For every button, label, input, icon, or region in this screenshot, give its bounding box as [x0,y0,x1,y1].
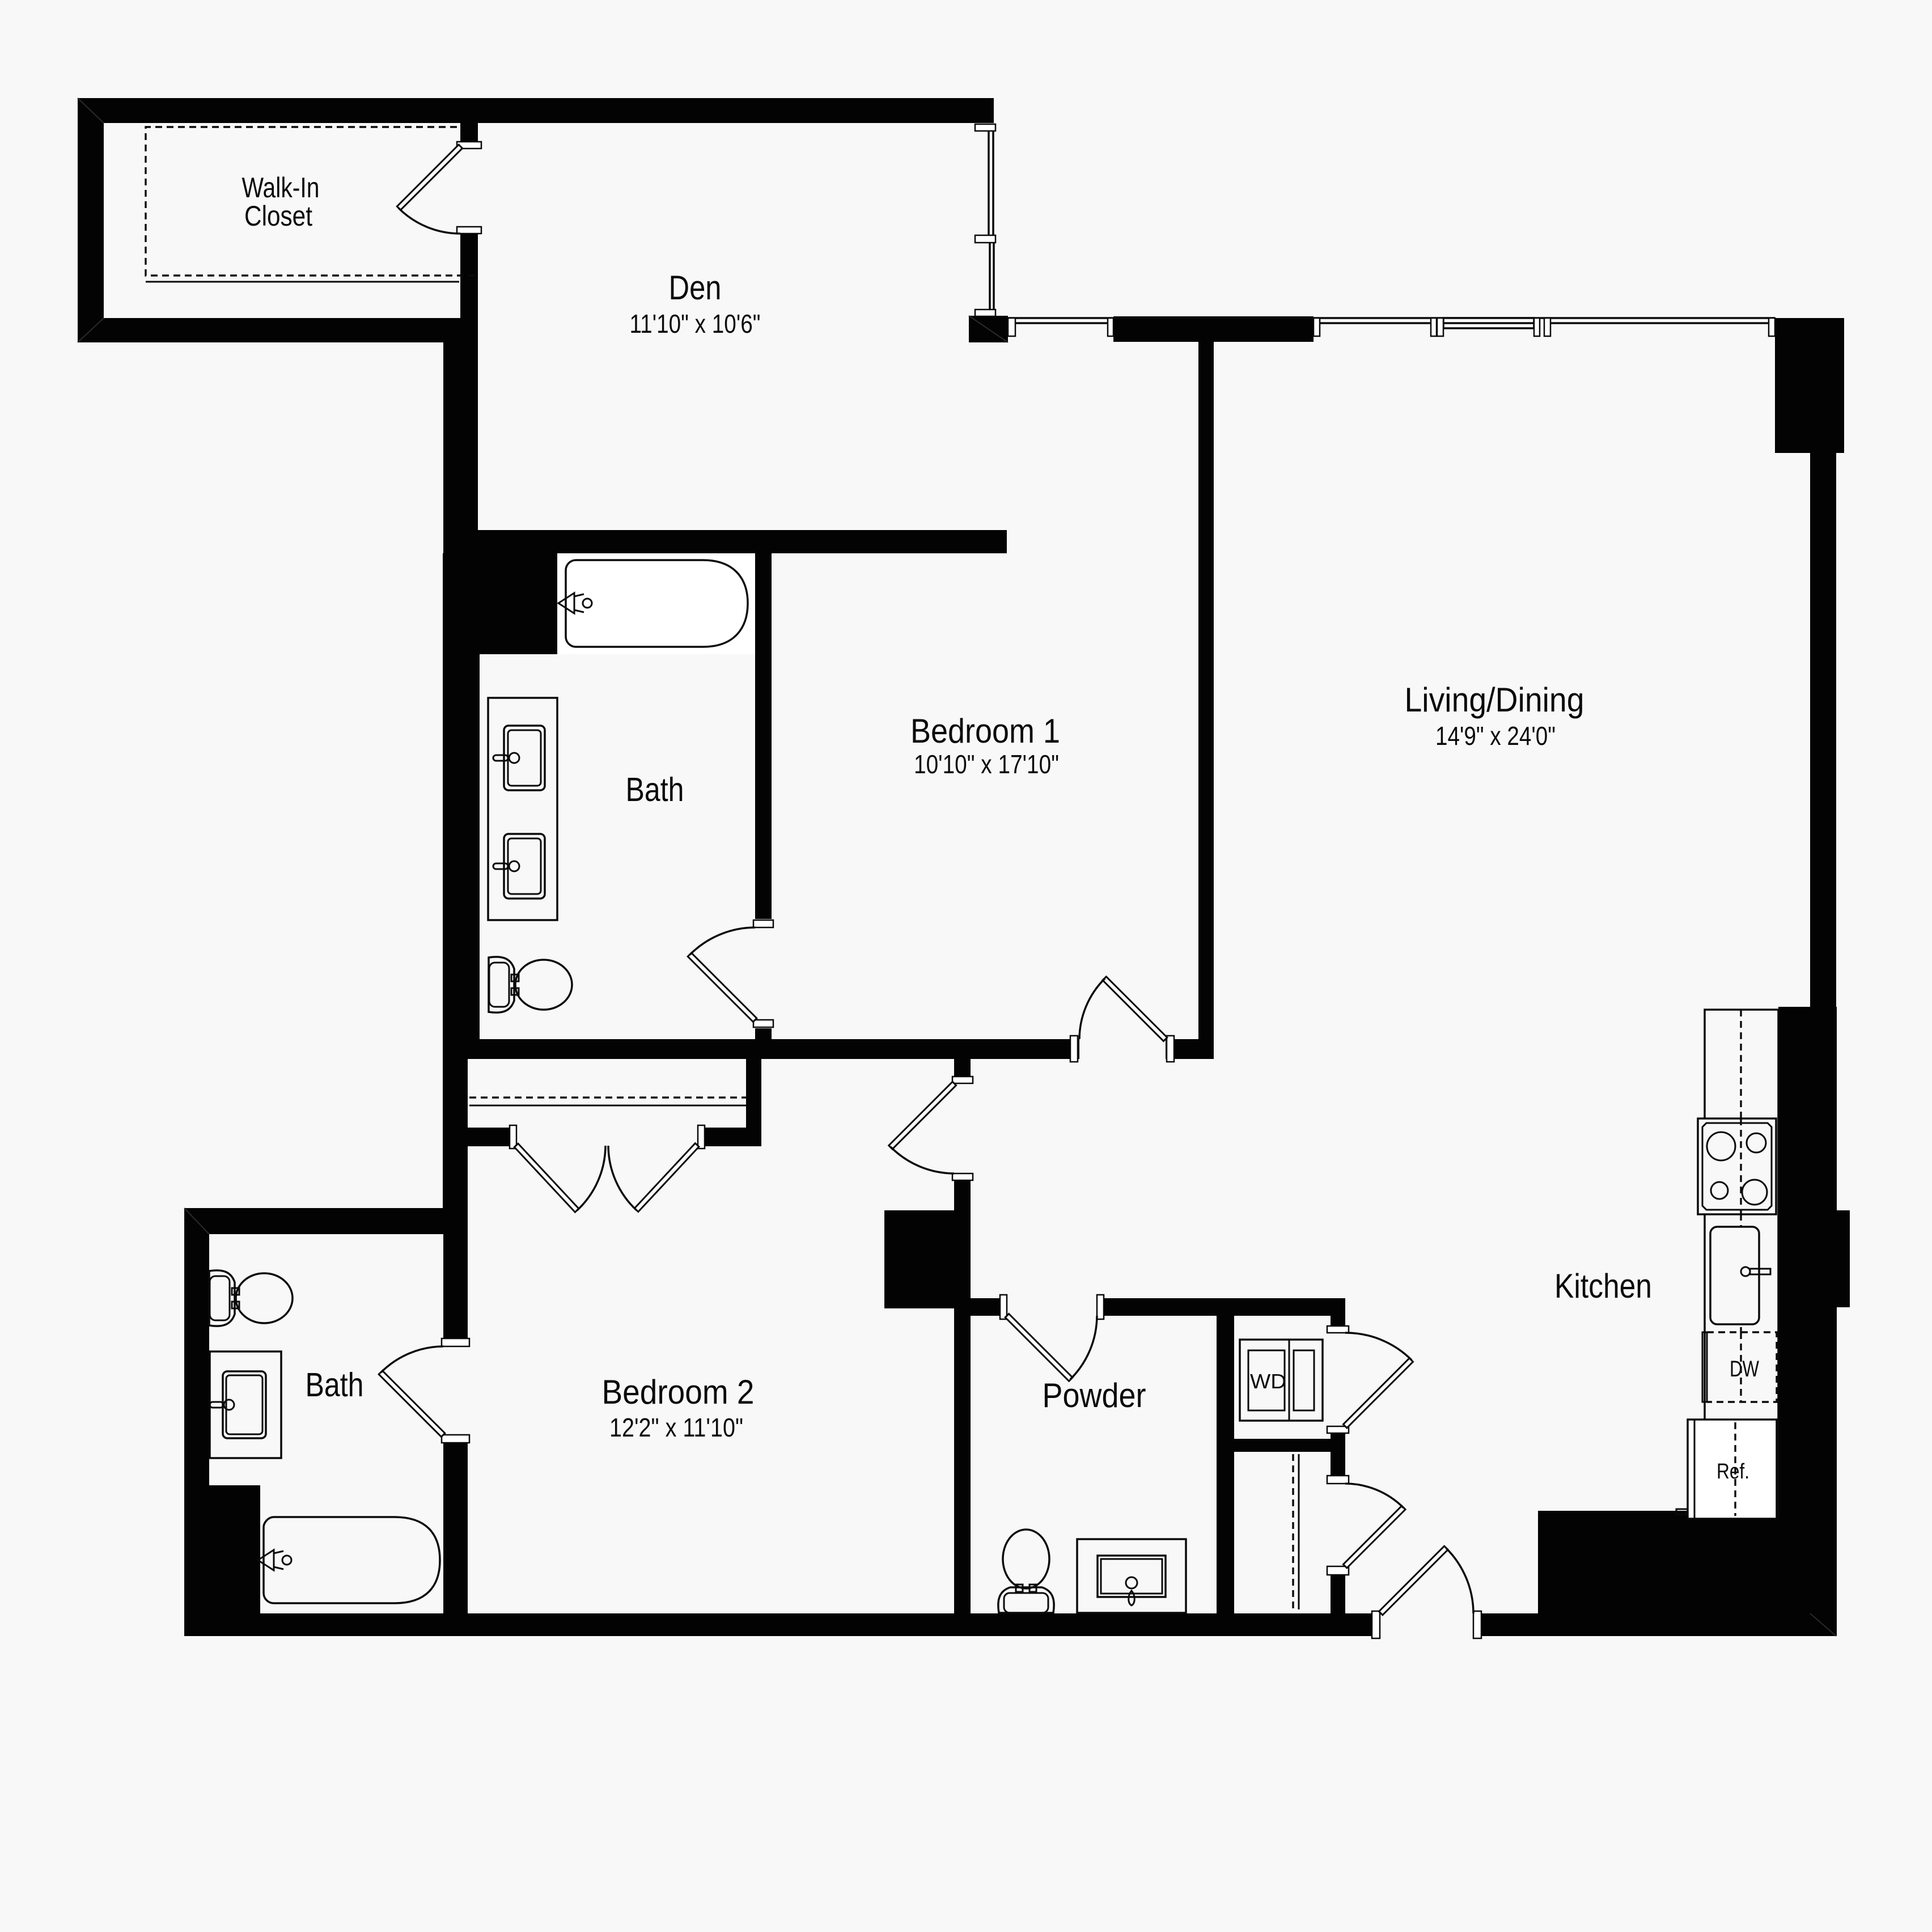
svg-text:Living/Dining: Living/Dining [1405,681,1584,719]
svg-text:11'10" x 10'6": 11'10" x 10'6" [630,309,761,338]
svg-text:Den: Den [669,269,722,307]
svg-text:Walk-In: Walk-In [242,172,320,204]
svg-text:Bath: Bath [626,771,684,808]
svg-text:Closet: Closet [244,200,312,232]
svg-text:Powder: Powder [1043,1376,1146,1414]
svg-text:Bath: Bath [306,1366,364,1404]
svg-text:14'9" x 24'0": 14'9" x 24'0" [1435,721,1556,751]
svg-text:Ref.: Ref. [1717,1460,1749,1484]
svg-text:WD: WD [1250,1370,1286,1393]
svg-text:10'10" x 17'10": 10'10" x 17'10" [914,749,1059,779]
svg-text:Bedroom 2: Bedroom 2 [602,1373,755,1411]
svg-text:DW: DW [1730,1357,1759,1382]
svg-text:12'2" x 11'10": 12'2" x 11'10" [609,1413,743,1442]
svg-text:Bedroom 1: Bedroom 1 [910,712,1060,750]
svg-text:Kitchen: Kitchen [1554,1267,1652,1305]
